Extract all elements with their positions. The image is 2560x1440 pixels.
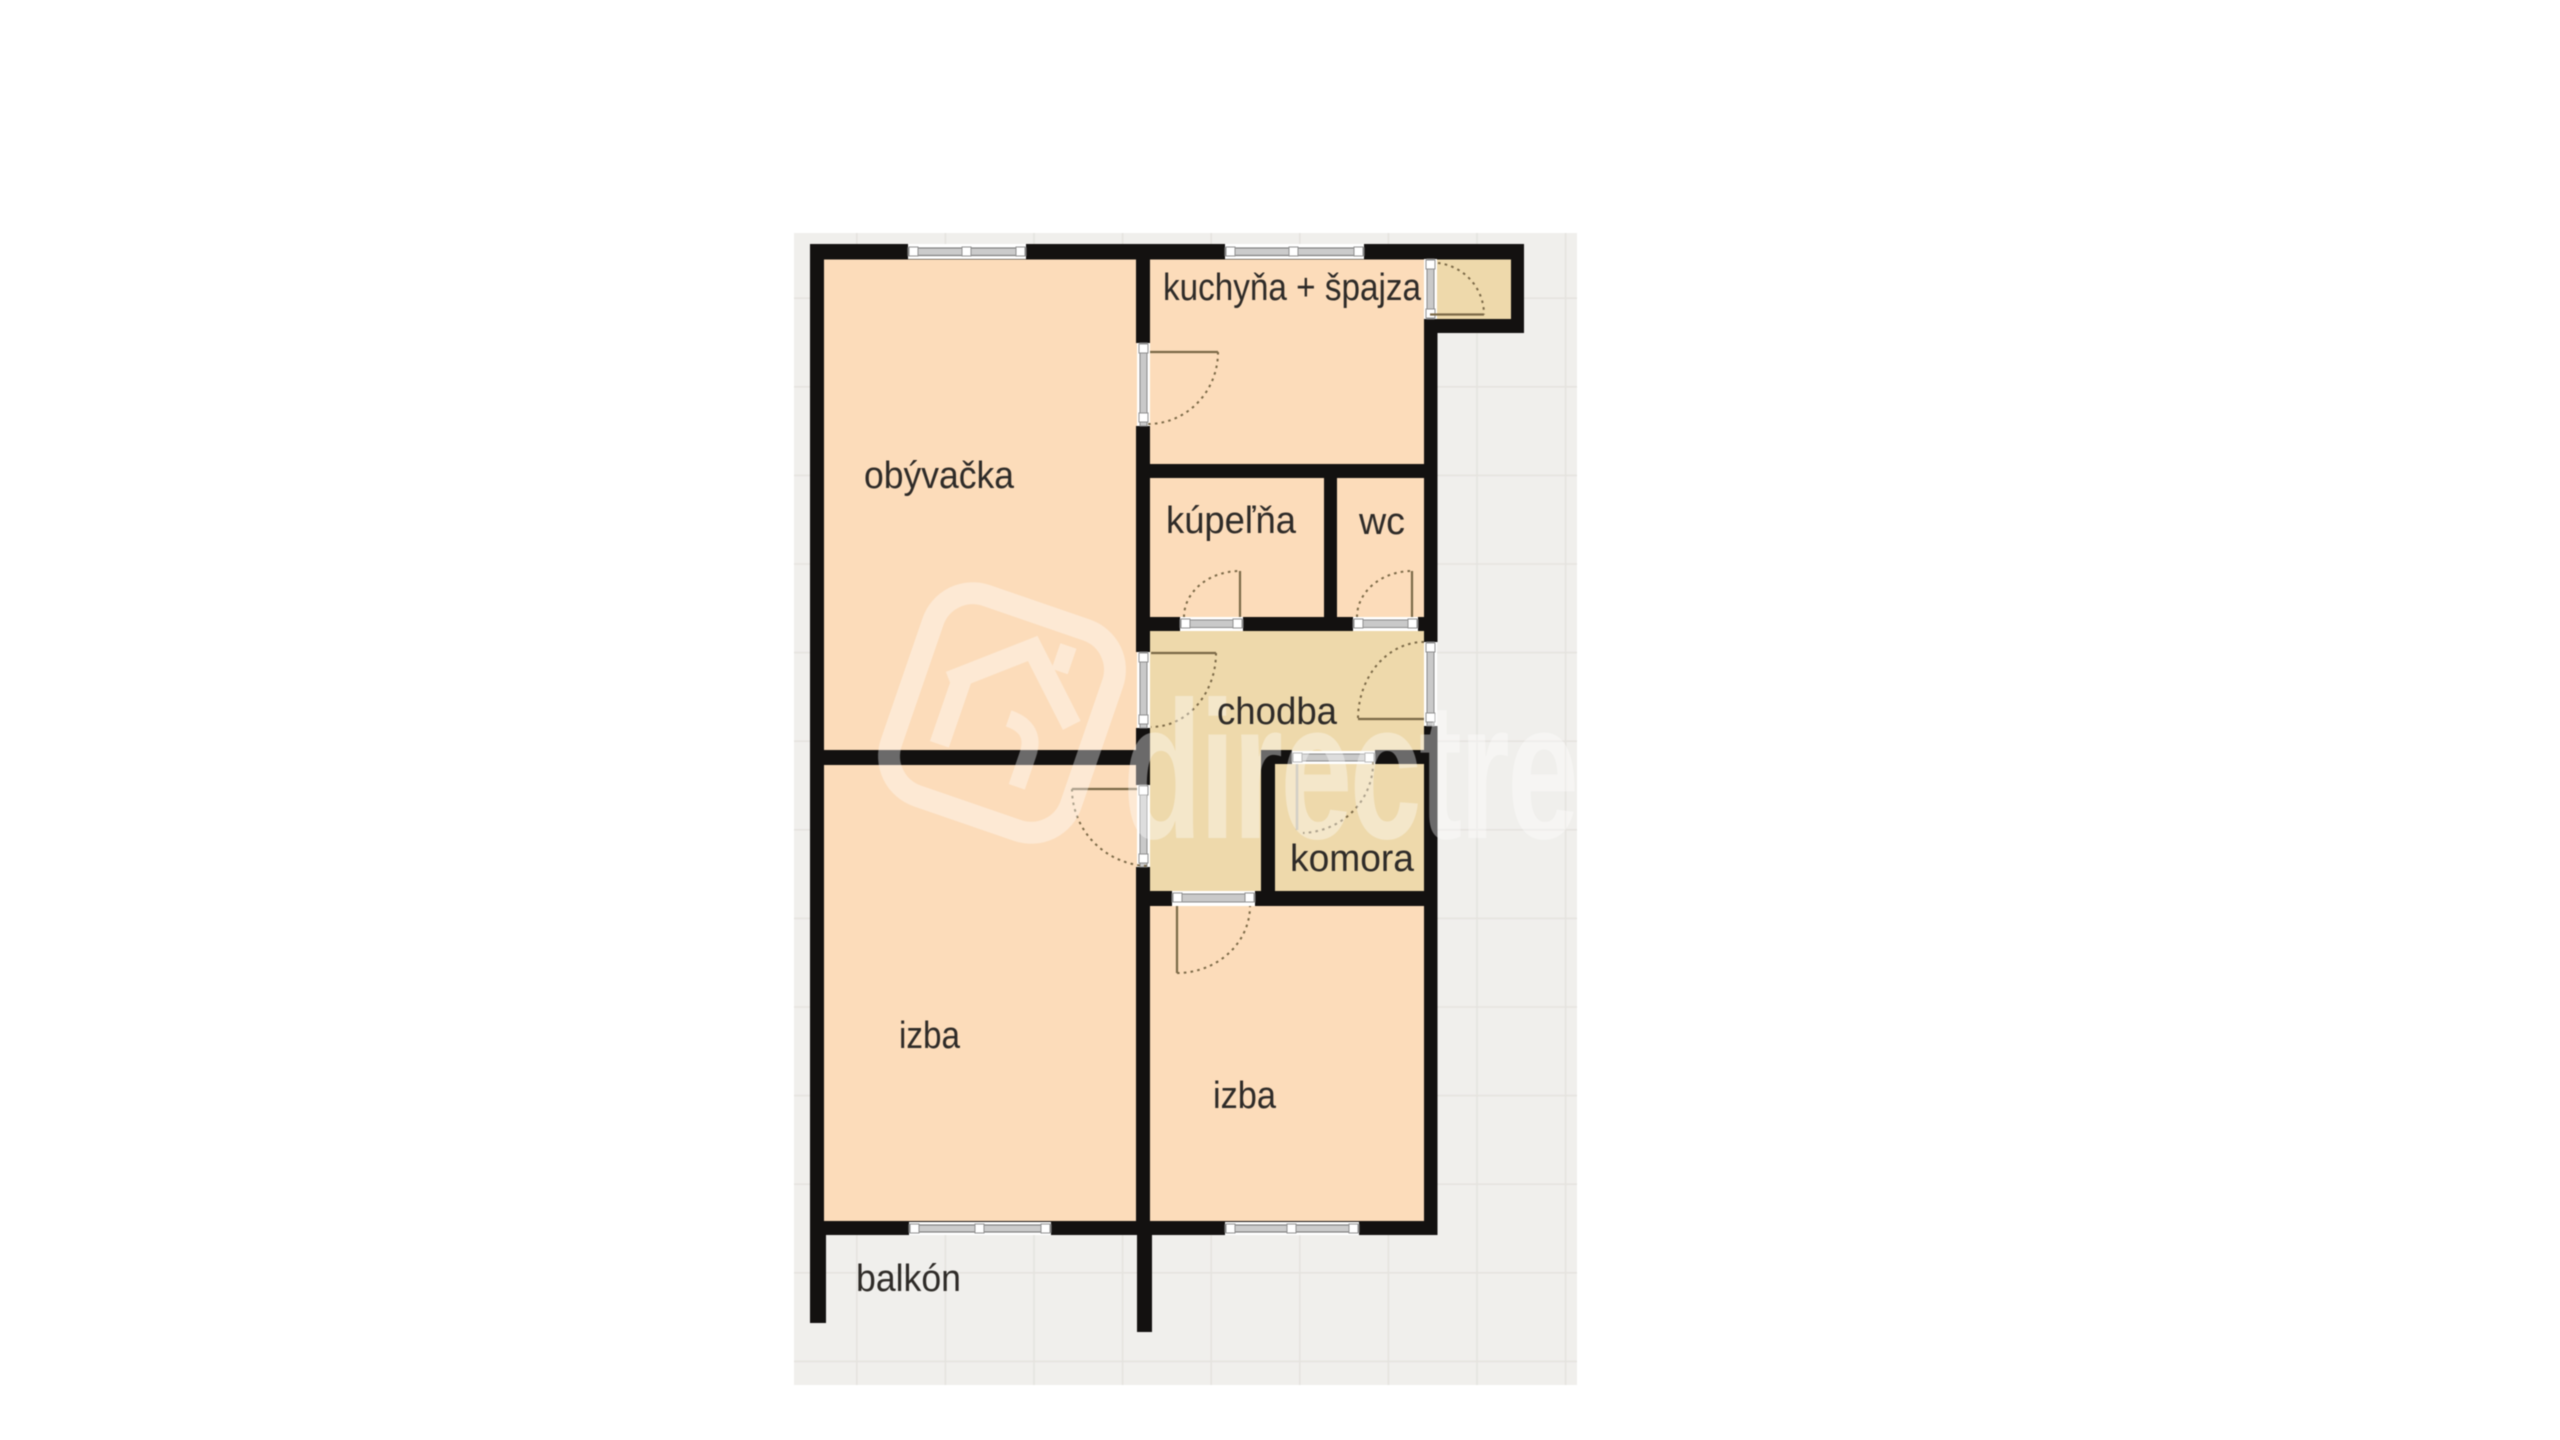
svg-text:kúpeľňa: kúpeľňa xyxy=(1166,500,1297,542)
svg-text:obývačka: obývačka xyxy=(864,455,1015,497)
svg-text:kuchyňa + špajza: kuchyňa + špajza xyxy=(1163,267,1422,309)
svg-text:wc: wc xyxy=(1358,501,1405,543)
svg-text:izba: izba xyxy=(899,1015,961,1057)
svg-text:chodba: chodba xyxy=(1217,691,1338,733)
svg-text:izba: izba xyxy=(1213,1075,1277,1117)
svg-text:komora: komora xyxy=(1290,838,1415,880)
svg-text:balkón: balkón xyxy=(856,1258,961,1300)
